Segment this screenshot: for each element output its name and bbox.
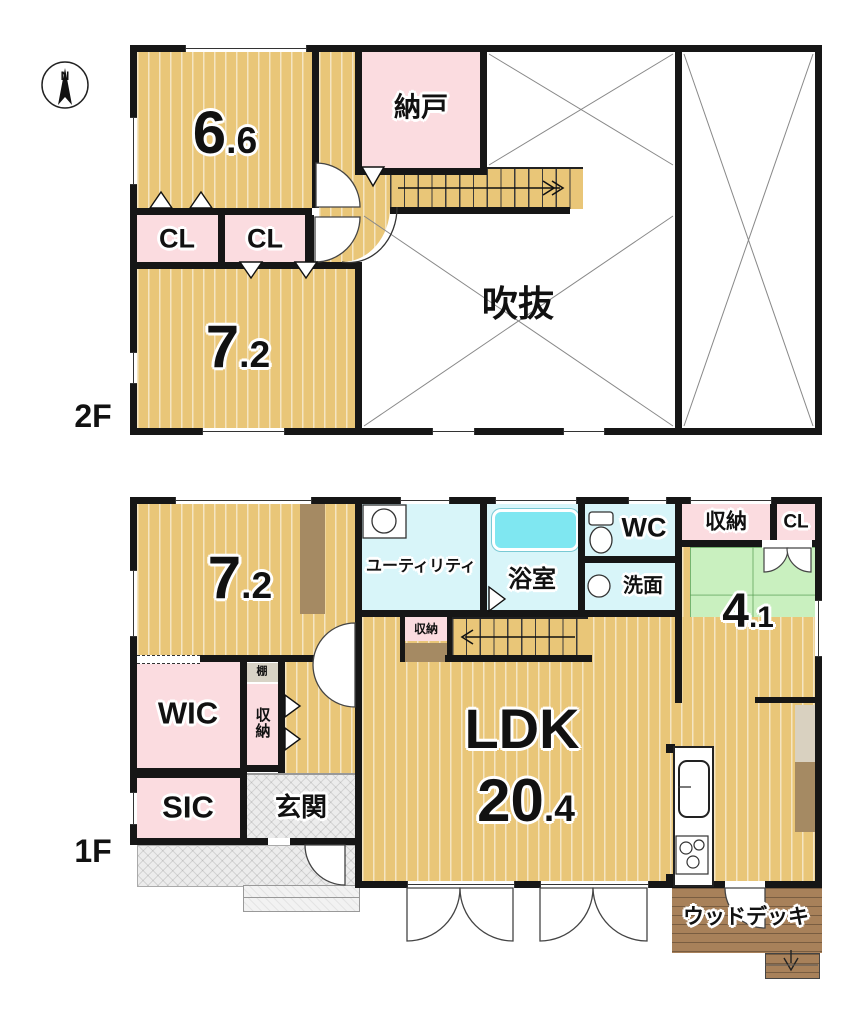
opening [137, 655, 200, 664]
wall [218, 215, 225, 262]
wall [355, 262, 362, 428]
stairs-1f [452, 617, 588, 657]
wall [305, 215, 314, 262]
window [130, 570, 137, 637]
window [628, 497, 667, 504]
wall [130, 838, 362, 845]
wall [362, 610, 682, 617]
window [495, 497, 577, 504]
door-opening [540, 881, 649, 888]
genkan-step-edge [247, 773, 355, 775]
room-label-wic: WIC [158, 698, 218, 729]
wall [390, 207, 570, 214]
deck-step [765, 953, 820, 979]
door-opening [762, 540, 812, 548]
window [185, 45, 307, 52]
closet-label-cl: CL [159, 226, 195, 253]
wall [815, 45, 822, 435]
floor-label-1f: 1F [74, 835, 111, 867]
wood-deck-label: ウッドデッキ [683, 907, 809, 928]
wall [200, 655, 362, 662]
room-size-4.1: 4.1 [722, 588, 774, 636]
wall [400, 617, 405, 662]
room-label-nando: 納戸 [394, 95, 448, 122]
room-size-7.2-1f: 7.2 [208, 548, 272, 608]
room-size-7.2-2f: 7.2 [206, 317, 270, 377]
wall [130, 262, 362, 269]
room-label-ldk: LDK [464, 701, 579, 757]
room-label-utility: ユーティリティ [366, 559, 476, 575]
floor-label-2f: 2F [74, 400, 111, 432]
floor-plan-canvas: N [0, 0, 865, 1024]
room-label-sic: SIC [162, 792, 214, 823]
wall [447, 617, 452, 662]
wall [240, 778, 247, 838]
bathtub [492, 509, 579, 551]
window [130, 117, 137, 185]
room-label-bath: 浴室 [508, 568, 556, 592]
wall [578, 497, 585, 617]
kitchen-sink [678, 760, 710, 818]
room-label-wc: WC [622, 515, 667, 542]
cabinet-under-stairs [405, 643, 447, 662]
wall [130, 768, 247, 778]
shelf-label: 棚 [257, 667, 268, 678]
window [815, 600, 822, 657]
void-label: 吹抜 [482, 286, 554, 322]
entrance-porch [137, 845, 357, 887]
wall [355, 497, 362, 888]
closet-label-cl: CL [247, 226, 283, 253]
door-opening [268, 838, 290, 845]
wall [480, 45, 487, 175]
room-size-20.4: 20.4 [477, 771, 575, 831]
window [130, 352, 137, 384]
wall [130, 208, 312, 215]
room-size-6.6: 6.6 [193, 103, 257, 163]
compass-north-icon: N [42, 62, 88, 108]
room-label-washroom: 洗面 [623, 576, 663, 596]
closet-label-cl-1f: CL [783, 513, 808, 532]
room-label-genkan: 玄関 [275, 794, 327, 820]
window [563, 428, 605, 435]
wall [355, 45, 362, 175]
window [690, 497, 772, 504]
wall [585, 556, 682, 563]
window [202, 428, 285, 435]
window [130, 792, 137, 825]
hall-1f [285, 662, 355, 775]
hall-2f [319, 163, 390, 262]
wall [755, 697, 815, 703]
compass-n-label: N [61, 69, 70, 83]
pillar-closet-1f [300, 504, 325, 614]
wall [445, 655, 592, 662]
storage-label-hall: 収納 [255, 707, 270, 739]
wall [278, 662, 285, 775]
tall-cabinet [795, 762, 815, 832]
storage-label-stairs: 収納 [414, 623, 438, 635]
door-opening [407, 881, 515, 888]
wall [312, 52, 319, 208]
door-opening [725, 881, 765, 888]
wall [355, 168, 487, 175]
window [400, 497, 450, 504]
wall [675, 497, 682, 703]
window [432, 428, 475, 435]
counter-cabinet [795, 705, 815, 762]
window [175, 497, 312, 504]
wall [480, 497, 487, 617]
porch-step [243, 897, 360, 912]
wall [815, 497, 822, 888]
room-utility [362, 504, 480, 610]
wall [240, 662, 247, 775]
storage-label-north: 収納 [705, 512, 747, 533]
wall [675, 52, 682, 428]
